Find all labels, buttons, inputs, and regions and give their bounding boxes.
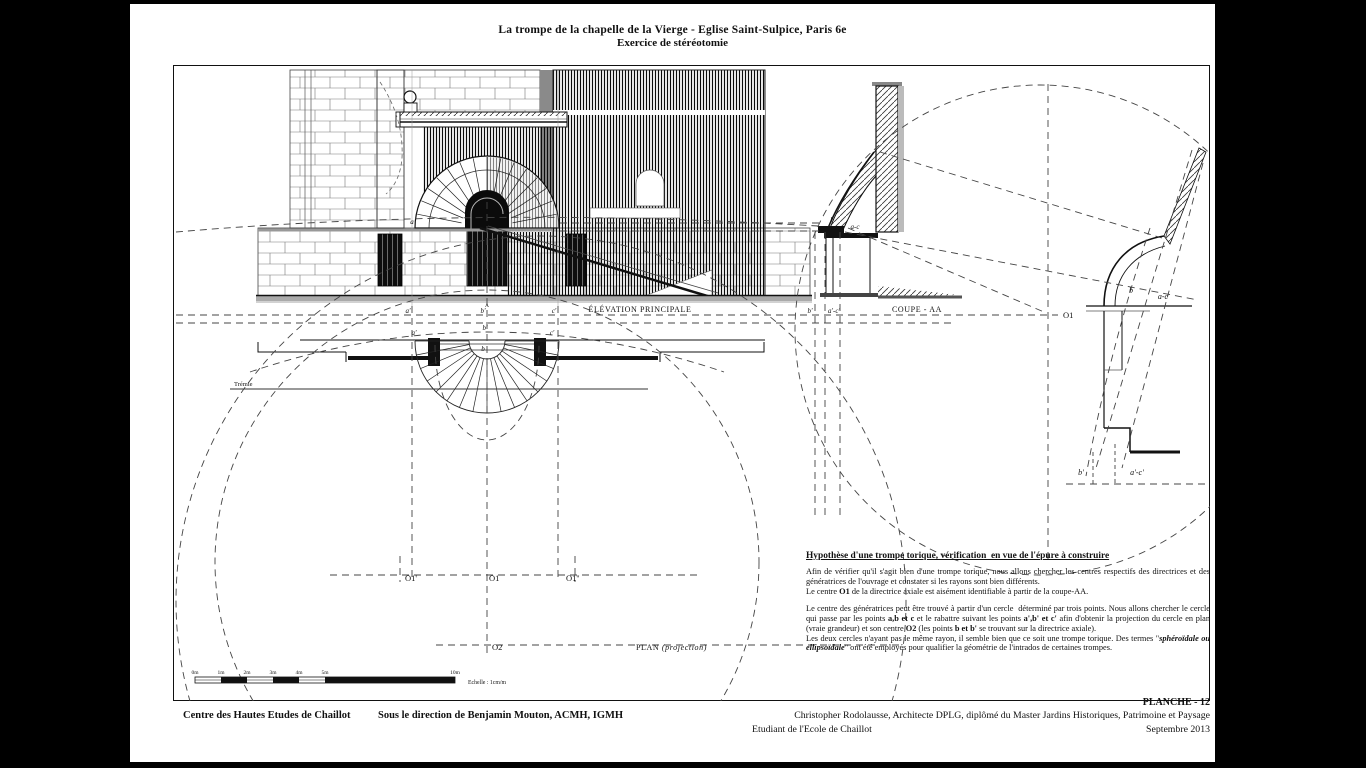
scale-tick-5: 5m: [321, 670, 329, 676]
scale-caption: Echelle : 1cm/m: [468, 680, 506, 686]
sphere-finial: [404, 91, 416, 103]
title-line-2: Exercice de stéréotomie: [130, 37, 1215, 49]
pt-a-prime-rab: a': [412, 329, 418, 337]
pt-O1-plan: O1: [489, 573, 499, 583]
notes-block: Hypothèse d'une trompe torique, vérifica…: [806, 551, 1210, 653]
pt-O2: O2: [492, 642, 502, 652]
elevation-attic-masonry: [404, 70, 540, 112]
detail-directrix-arc: [1104, 236, 1164, 306]
pt-ac-prime-detail: a'-c': [1130, 468, 1144, 477]
pt-a-prime-proj: a': [406, 307, 412, 315]
scale-tick-0: 0m: [191, 670, 199, 676]
scale-tick-4: 4m: [295, 670, 303, 676]
scale-bar: 0m 1m 2m 3m 4m 5m 10m Echelle : 1cm/m: [191, 670, 506, 686]
footer-student: Etudiant de l'Ecole de Chaillot: [752, 724, 872, 735]
coupe-directrix-circle: [795, 85, 1210, 575]
pt-O1: O1: [1063, 310, 1073, 320]
coupe-pier: [876, 86, 898, 232]
tremie-label: Trémie: [234, 381, 253, 388]
coupe-label: COUPE - AA: [892, 305, 942, 314]
plate-number: PLANCHE - 12: [900, 697, 1210, 708]
pt-b-prime-coupe: b': [808, 307, 814, 315]
pt-ac-detail: a-c: [1158, 292, 1169, 301]
elevation-left-wall: [290, 70, 377, 228]
niche: [636, 170, 664, 206]
scale-tick-1: 1m: [217, 670, 225, 676]
pt-b-plan: b: [481, 345, 485, 353]
scale-tick-10: 10m: [450, 670, 461, 676]
pt-b-coupe: b: [830, 216, 834, 224]
footer-direction: Sous le direction de Benjamin Mouton, AC…: [378, 710, 623, 721]
pt-O1-prime: O1': [405, 573, 417, 583]
coupe-trompe-section: [830, 150, 876, 232]
scale-tick-2: 2m: [243, 670, 251, 676]
footer-author: Christopher Rodolausse, Architecte DPLG,…: [752, 710, 1210, 721]
pt-b-prime-detail: b': [1078, 468, 1084, 477]
pt-c-prime-proj: c': [552, 307, 557, 315]
pt-ac-coupe: a-c: [851, 223, 861, 231]
elevation-drawing: [256, 70, 812, 302]
section-marker-A: A: [485, 303, 489, 309]
left-grille: [378, 234, 402, 286]
pt-c-prime-rab: c': [550, 329, 555, 337]
notes-paragraph-2: Le centre des génératrices peut être tro…: [806, 604, 1210, 653]
notes-paragraph-1: Afin de vérifier qu'il s'agit bien d'une…: [806, 567, 1210, 596]
pt-ac-prime-coupe: a'-c': [828, 307, 840, 315]
elevation-label: ÉLÉVATION PRINCIPALE: [589, 304, 692, 314]
plan-label: PLAN (projection): [636, 643, 707, 652]
notes-heading: Hypothèse d'une trompe torique, vérifica…: [806, 551, 1210, 561]
pt-b-prime-rab: b': [483, 324, 489, 332]
elevation-quoin: [377, 70, 404, 228]
scale-tick-3: 3m: [269, 670, 277, 676]
sheet-title: La trompe de la chapelle de la Vierge - …: [130, 24, 1215, 49]
pt-a-elevation: a: [410, 218, 414, 226]
coupe-drawing: [818, 82, 962, 297]
footer-date: Septembre 2013: [1146, 724, 1210, 735]
title-line-1: La trompe de la chapelle de la Vierge - …: [130, 24, 1215, 36]
footer-institution: Centre des Hautes Etudes de Chaillot: [183, 710, 351, 721]
pt-O1-second: O1'': [566, 573, 580, 583]
footer-author-block: Christopher Rodolausse, Architecte DPLG,…: [752, 710, 1210, 735]
pt-b-detail: b: [1129, 286, 1133, 295]
detail-drawing: [1066, 148, 1206, 484]
